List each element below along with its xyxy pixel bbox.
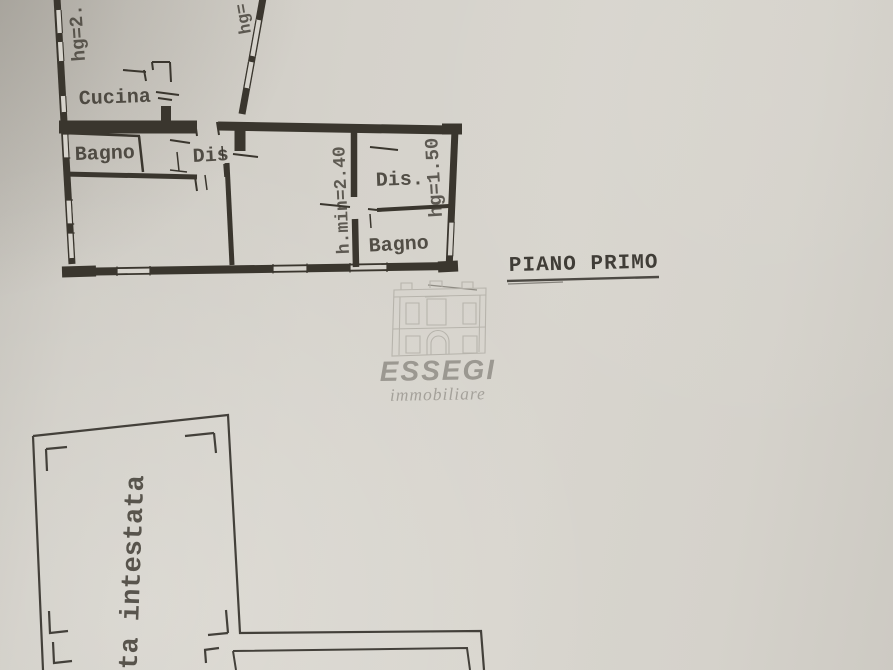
floorplan-drawing: Cucina Bagno Dis Dis. Bagno hg=2.. hg= h… xyxy=(0,0,893,670)
watermark-name: ESSEGI xyxy=(379,354,496,387)
dim-label-hg-left: hg=2.. xyxy=(64,0,91,62)
scanned-floorplan-photo: Cucina Bagno Dis Dis. Bagno hg=2.. hg= h… xyxy=(0,0,893,670)
floor-title-underline-2 xyxy=(508,282,563,284)
room-label-bagno-right: Bagno xyxy=(368,232,429,258)
window-gaps xyxy=(58,10,451,271)
room-label-bagno-left: Bagno xyxy=(74,142,135,167)
room-label-cucina: Cucina xyxy=(78,86,151,111)
lower-plan-outer-outline xyxy=(33,415,484,670)
building-lower-windows xyxy=(406,336,477,353)
wall-central-vertical xyxy=(227,163,232,265)
floor-title-underline xyxy=(507,277,659,281)
floor-title: PIANO PRIMO xyxy=(507,252,659,284)
building-sketch xyxy=(392,281,486,356)
dim-label-hg-top: hg= xyxy=(233,2,257,35)
upper-floor-plan: Cucina Bagno Dis Dis. Bagno hg=2.. hg= h… xyxy=(56,0,477,290)
building-upper-windows xyxy=(406,299,476,325)
agency-watermark: ESSEGI immobiliare xyxy=(379,281,496,405)
room-label-dis-left: Dis xyxy=(192,144,229,169)
kitchen-fixture xyxy=(123,62,171,82)
building-arch-door xyxy=(427,330,449,355)
room-labels: Cucina Bagno Dis Dis. Bagno xyxy=(74,86,429,259)
wall-horizontal-right xyxy=(218,126,450,130)
lower-plan-inner-rect xyxy=(233,648,470,670)
floor-title-text: PIANO PRIMO xyxy=(509,252,659,278)
dim-label-hg-right: hg=1.50 xyxy=(421,137,448,218)
lower-plan: tta intestata xyxy=(33,415,484,670)
room-label-dis-right: Dis. xyxy=(375,168,424,193)
wall-bagno-left-bottom xyxy=(64,174,197,177)
lower-plan-vertical-text: tta intestata xyxy=(115,475,152,670)
watermark-tagline: immobiliare xyxy=(390,383,486,405)
